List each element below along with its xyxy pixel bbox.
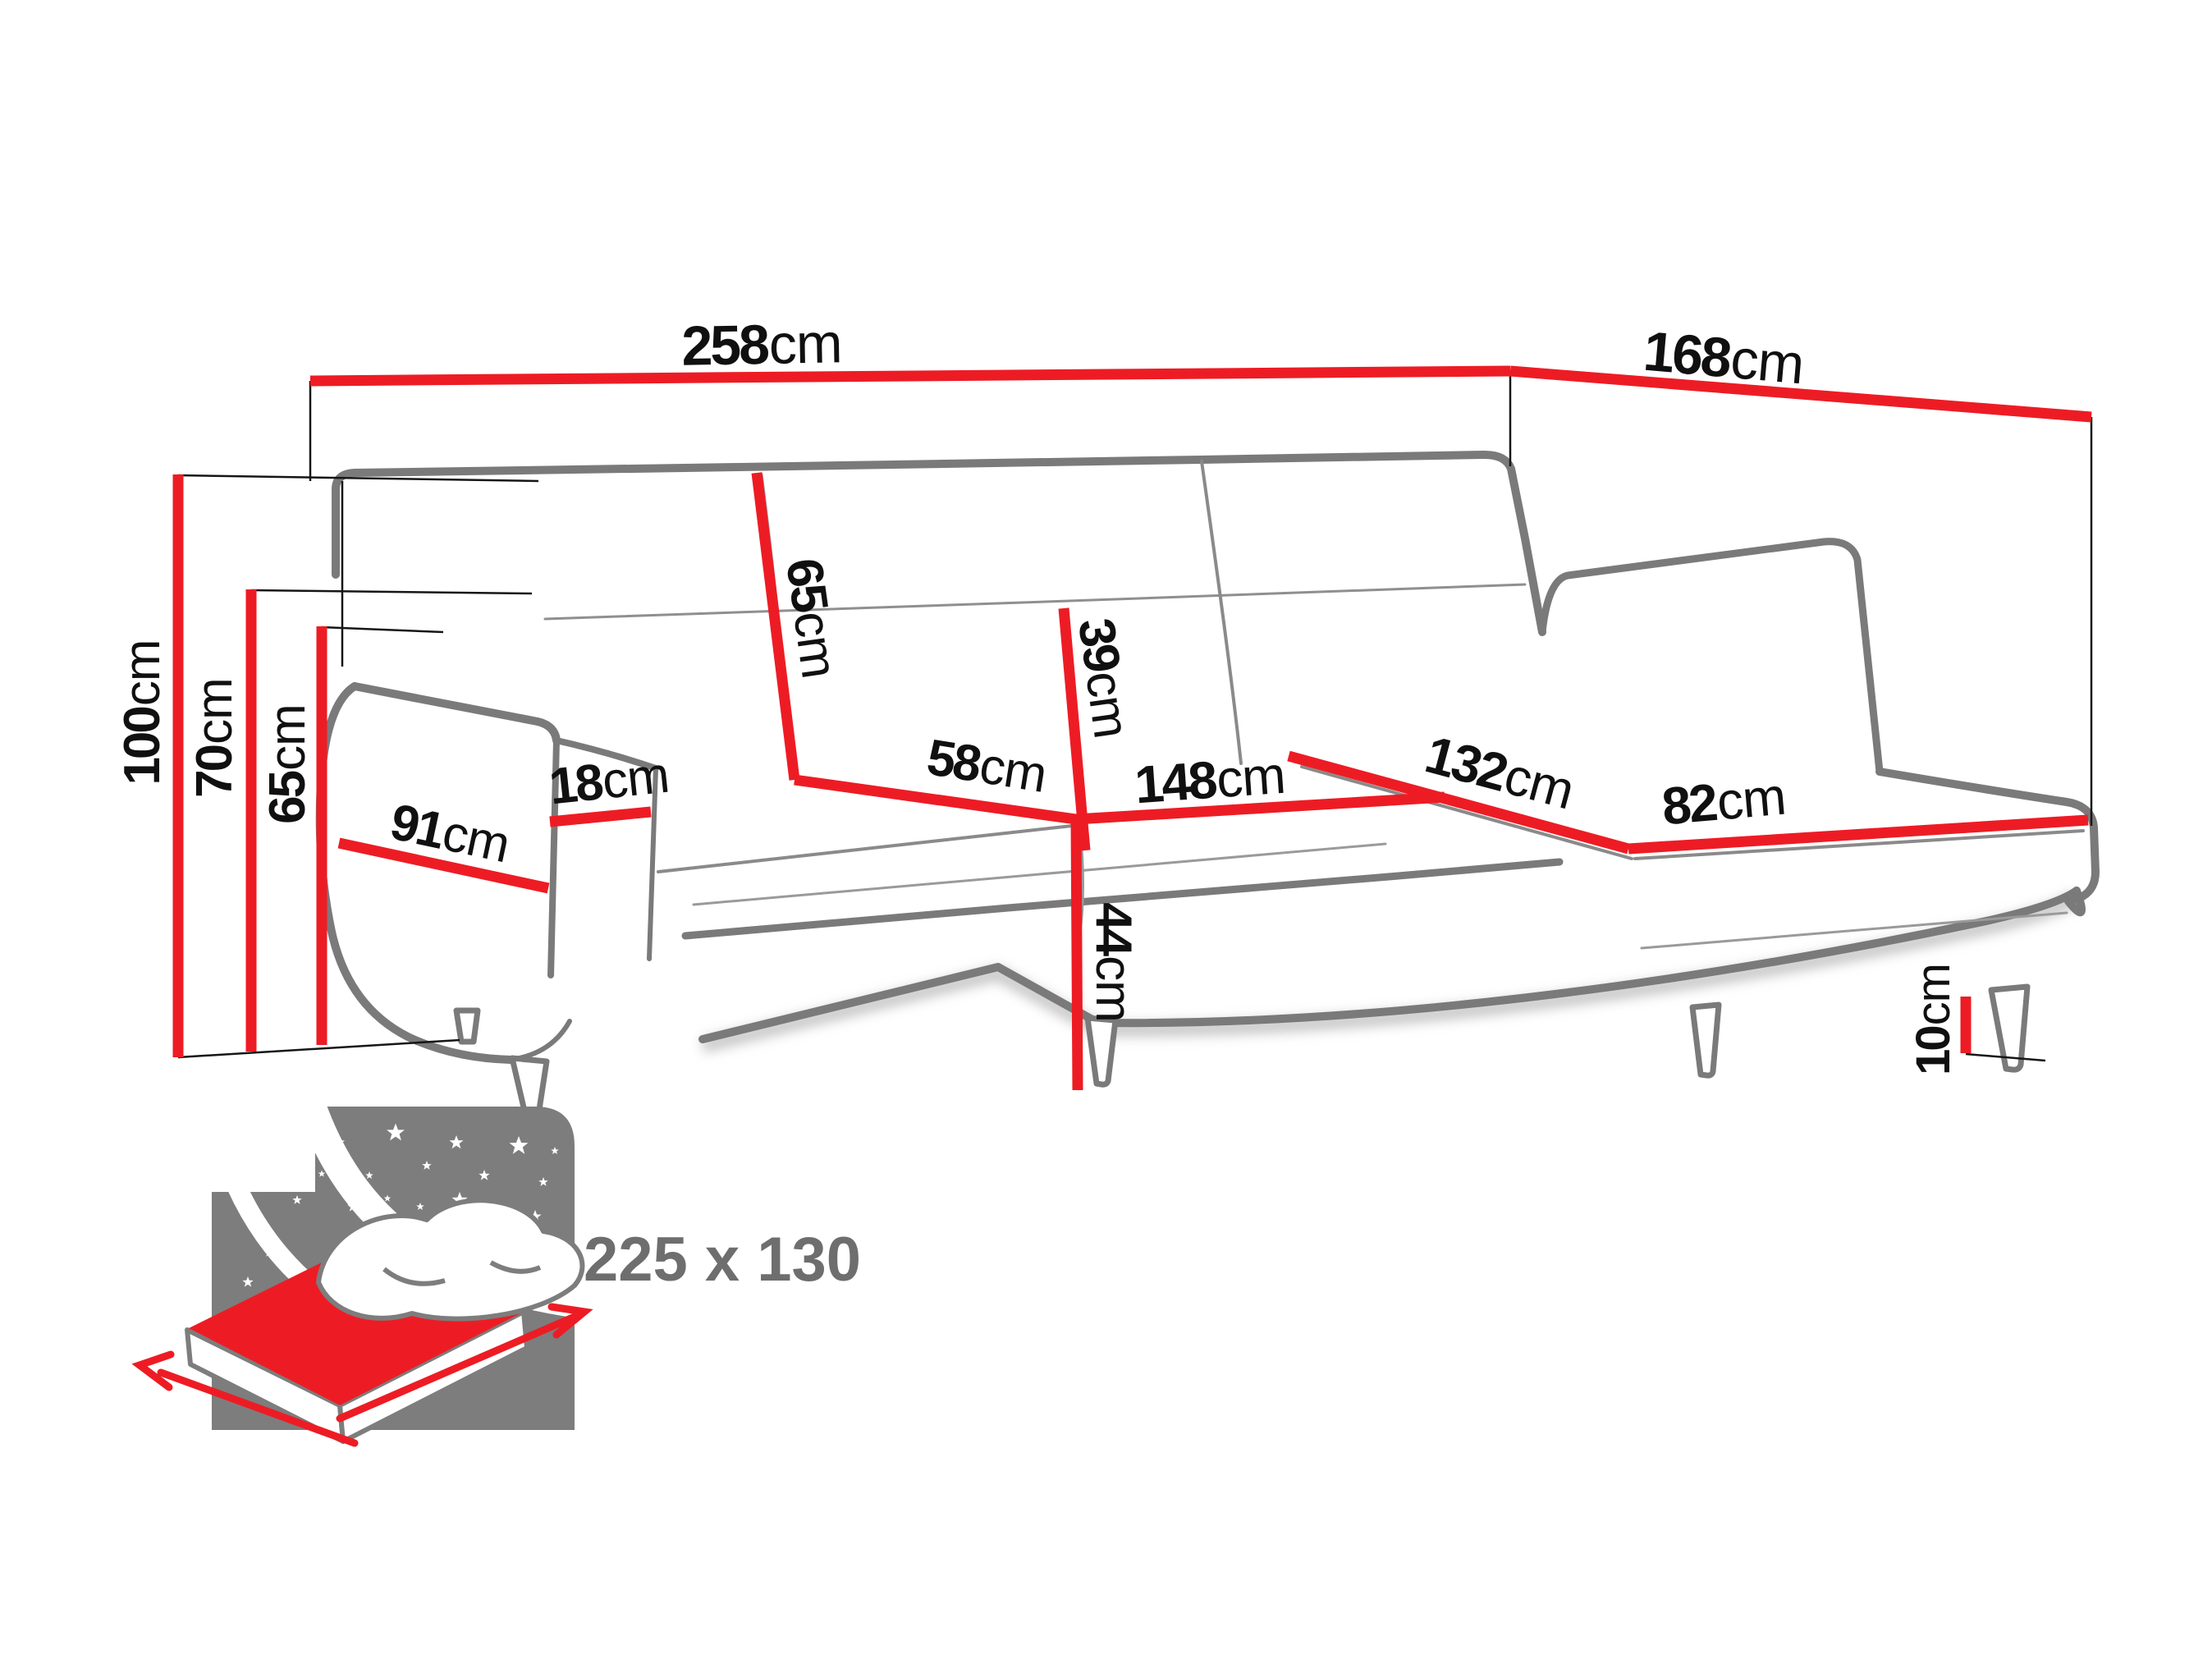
dim-seat-height-unit: cm xyxy=(1085,956,1142,1022)
sofa-dimensions-diagram: 258cm 168cm 100cm 70cm 65cm 91cm 18cm 65… xyxy=(0,0,2212,1659)
leg-chaise-middle xyxy=(1692,1005,1719,1075)
seat-cushion-seam xyxy=(694,844,1385,905)
dim-label-seat-width: 148cm xyxy=(1133,749,1286,812)
dim-headrest-height-unit: cm xyxy=(1074,667,1140,740)
left-arm-bottom-join xyxy=(511,1021,570,1060)
dim-seat-width-value: 148 xyxy=(1133,750,1217,815)
dim-line-seat-height xyxy=(1076,819,1078,1090)
proj-side-height-top xyxy=(322,627,443,632)
dim-label-arm-width: 18cm xyxy=(547,750,671,813)
dim-side-height-value: 65 xyxy=(259,772,316,824)
dim-label-seat-height: 44cm xyxy=(1088,902,1138,1022)
dim-backrest-height-unit: cm xyxy=(782,607,848,681)
dim-arm-depth-value: 91 xyxy=(386,794,448,860)
dim-arm-height-unit: cm xyxy=(186,678,243,745)
dim-side-height-unit: cm xyxy=(259,704,316,771)
dim-arm-width-unit: cm xyxy=(600,747,671,810)
proj-arm-height-top xyxy=(251,590,532,593)
sofa-legs xyxy=(456,987,2027,1119)
dim-leg-height-unit: cm xyxy=(1907,964,1960,1025)
dim-chaise-width-value: 82 xyxy=(1660,772,1718,836)
dim-label-arm-height: 70cm xyxy=(190,678,240,798)
dim-total-depth-unit: cm xyxy=(1729,328,1807,396)
sofa-bed-icon xyxy=(140,1088,584,1443)
dim-seat-depth-unit: cm xyxy=(976,737,1050,804)
left-arm-top xyxy=(355,686,556,740)
dim-label-chaise-width: 82cm xyxy=(1660,770,1788,833)
dim-total-depth-value: 168 xyxy=(1641,320,1732,390)
dim-total-height-unit: cm xyxy=(114,639,171,706)
dim-label-total-width: 258cm xyxy=(681,315,842,374)
dim-label-side-height: 65cm xyxy=(263,704,314,824)
dim-label-total-height: 100cm xyxy=(117,639,168,785)
dim-label-leg-height: 10cm xyxy=(1910,964,1958,1075)
backrest-crease-line xyxy=(545,584,1525,619)
dim-backrest-height-value: 65 xyxy=(775,555,838,614)
dim-arm-width-value: 18 xyxy=(547,754,604,815)
chaise-arm-panel xyxy=(1542,542,1880,772)
dim-seat-height-value: 44 xyxy=(1085,902,1142,954)
dim-total-width-unit: cm xyxy=(768,312,842,376)
dim-seat-width-unit: cm xyxy=(1215,745,1287,809)
backrest-seam-right xyxy=(1202,461,1241,763)
dim-seat-depth-value: 58 xyxy=(923,729,983,793)
dim-headrest-height-value: 39 xyxy=(1067,615,1130,674)
dim-label-total-depth: 168cm xyxy=(1642,323,1806,393)
dim-arm-height-value: 70 xyxy=(186,746,243,798)
leg-left-rear xyxy=(456,1011,478,1042)
dim-total-height-value: 100 xyxy=(114,708,171,785)
dim-chaise-width-unit: cm xyxy=(1715,767,1788,832)
dim-total-width-value: 258 xyxy=(681,314,768,378)
leg-middle-front xyxy=(1088,1018,1115,1084)
dim-line-total-width xyxy=(310,371,1510,381)
diagram-canvas xyxy=(0,0,2212,1659)
seat-front-top-edge xyxy=(658,826,1072,872)
dim-leg-height-value: 10 xyxy=(1907,1027,1960,1075)
bed-size-label: 225 x 130 xyxy=(584,1229,861,1291)
